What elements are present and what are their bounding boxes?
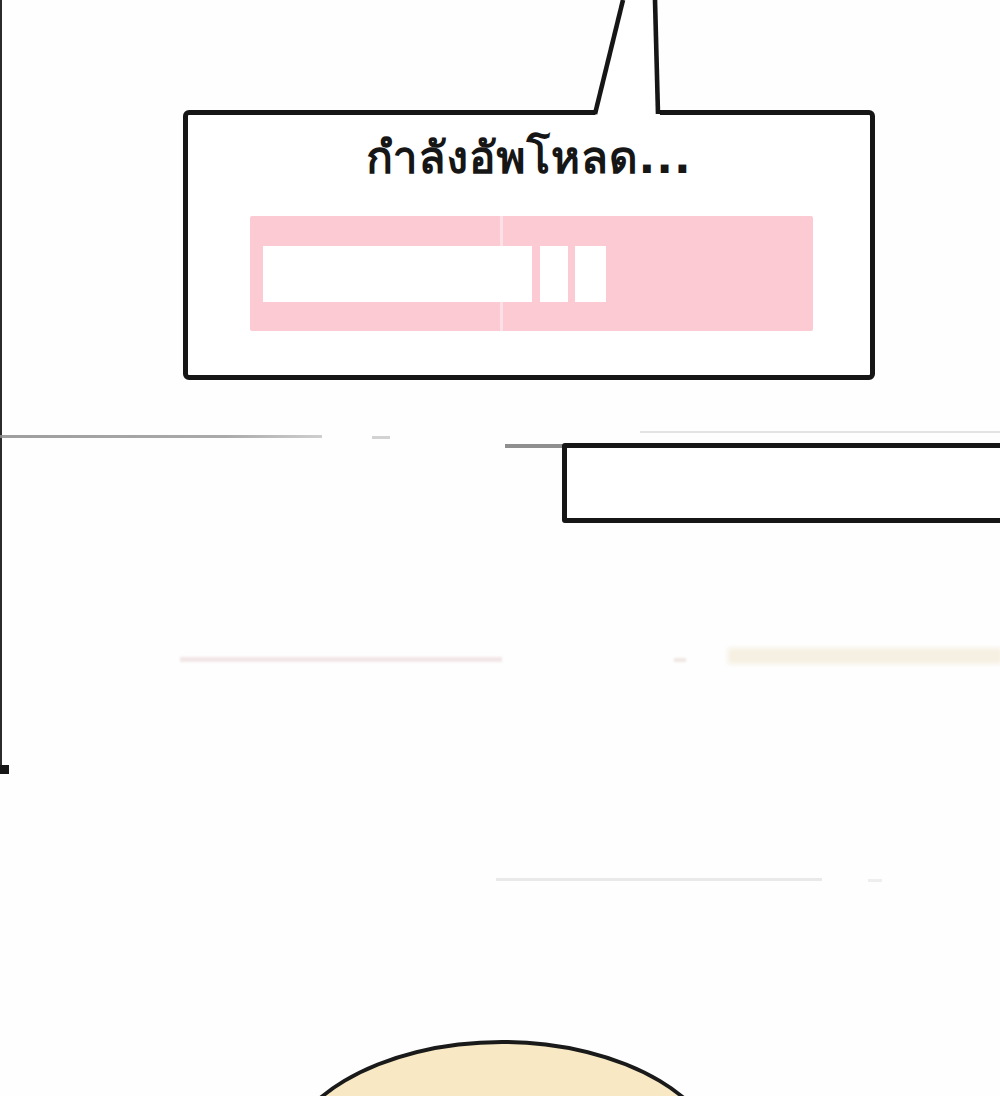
progress-bar-segment-2	[575, 246, 606, 302]
image-stitch-seam-line	[500, 216, 503, 331]
progress-bar-fill	[263, 246, 532, 302]
sketch-line	[640, 431, 1000, 433]
empty-caption-box	[562, 443, 1000, 523]
erased-smudge-line	[180, 657, 502, 662]
panel-edge-line	[0, 0, 2, 772]
sketch-line	[505, 444, 565, 448]
erased-smudge-band	[728, 648, 1000, 664]
panel-edge-tick	[0, 765, 9, 774]
sketch-line	[496, 878, 822, 881]
progress-bar-segment-1	[540, 246, 568, 302]
speech-bubble-tail	[580, 0, 670, 120]
tail-fill	[595, 0, 660, 117]
speech-bubble: กำลังอัพโหลด...	[183, 110, 875, 380]
character-head-ellipse	[277, 1040, 727, 1096]
uploading-text: กำลังอัพโหลด...	[188, 129, 870, 187]
tail-right-line	[655, 0, 658, 114]
sketch-line	[0, 435, 322, 438]
sketch-mark	[868, 879, 882, 882]
sketch-line	[372, 436, 390, 439]
erased-smudge-mark	[674, 658, 686, 662]
comic-page: กำลังอัพโหลด...	[0, 0, 1000, 1096]
progress-bar-track	[250, 216, 813, 331]
